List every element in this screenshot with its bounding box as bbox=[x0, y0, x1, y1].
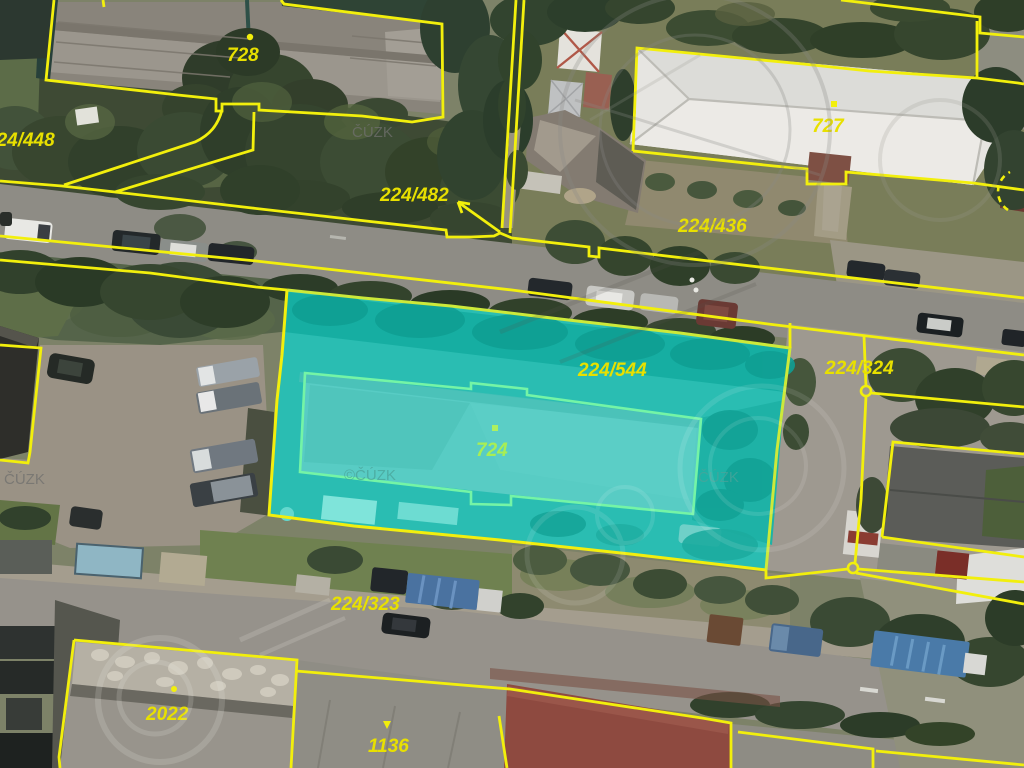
svg-text:224/482: 224/482 bbox=[379, 185, 449, 206]
svg-text:1136: 1136 bbox=[368, 736, 409, 757]
svg-text:224/323: 224/323 bbox=[330, 594, 400, 615]
svg-text:224/436: 224/436 bbox=[677, 216, 747, 237]
svg-text:224/324: 224/324 bbox=[824, 358, 894, 379]
svg-text:728: 728 bbox=[227, 45, 259, 66]
svg-text:©ČÚZK: ©ČÚZK bbox=[344, 467, 396, 484]
svg-text:ČÚZK: ČÚZK bbox=[698, 469, 739, 486]
svg-text:724: 724 bbox=[476, 440, 508, 461]
svg-text:ČÚZK: ČÚZK bbox=[352, 124, 393, 141]
svg-text:224/448: 224/448 bbox=[0, 130, 55, 151]
svg-text:ČÚZK: ČÚZK bbox=[4, 471, 45, 488]
svg-text:224/544: 224/544 bbox=[577, 360, 647, 381]
